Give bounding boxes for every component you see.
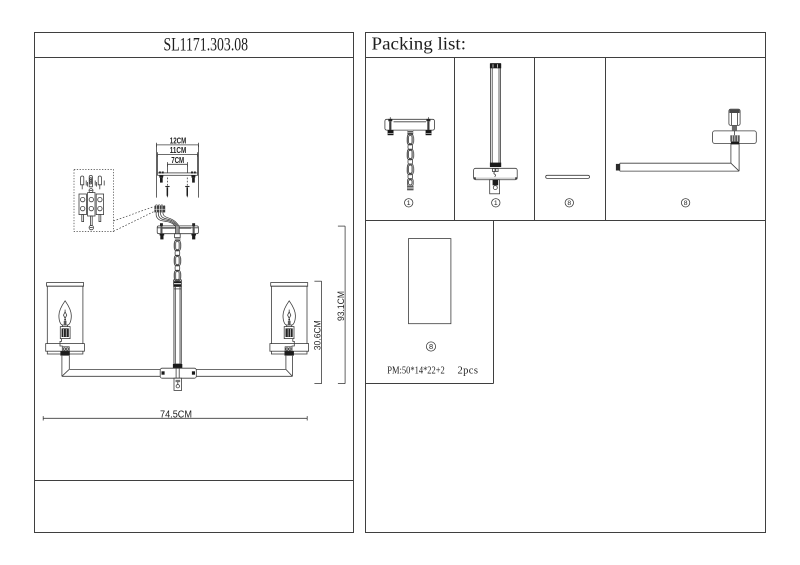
svg-text:8: 8 — [567, 200, 571, 207]
svg-text:PM:50*14*22+2: PM:50*14*22+2 — [387, 364, 445, 376]
svg-text:1: 1 — [494, 200, 498, 207]
svg-text:74.5CM: 74.5CM — [160, 410, 192, 421]
svg-text:30.6CM: 30.6CM — [313, 320, 324, 350]
svg-text:SL1171.303.08: SL1171.303.08 — [164, 34, 249, 55]
svg-text:11CM: 11CM — [170, 146, 187, 155]
svg-text:1: 1 — [407, 200, 411, 207]
svg-text:12CM: 12CM — [170, 136, 187, 145]
svg-text:2pcs: 2pcs — [458, 365, 479, 376]
svg-text:8: 8 — [684, 200, 688, 207]
svg-text:8: 8 — [429, 342, 433, 351]
svg-text:93.1CM: 93.1CM — [336, 291, 347, 321]
svg-text:Packing list:: Packing list: — [372, 34, 467, 54]
svg-text:7CM: 7CM — [171, 156, 184, 165]
